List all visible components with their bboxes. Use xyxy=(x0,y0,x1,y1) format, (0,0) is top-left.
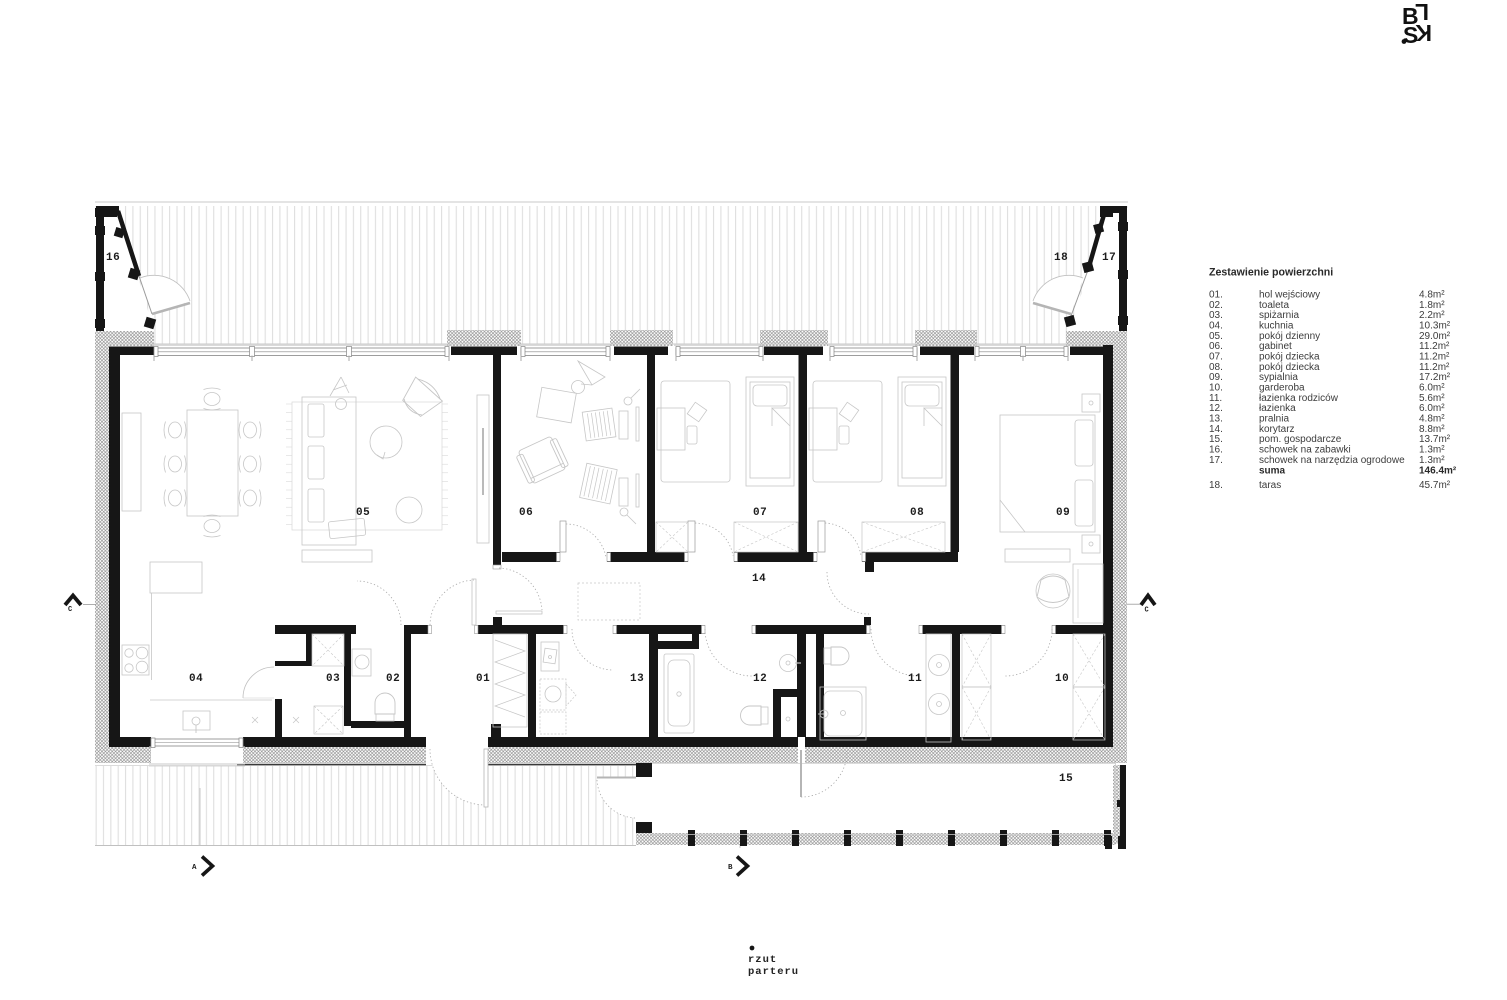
svg-text:45.7m²: 45.7m² xyxy=(1419,480,1451,491)
svg-text:parteru: parteru xyxy=(748,966,799,978)
svg-text:K: K xyxy=(1415,20,1432,46)
svg-text:suma: suma xyxy=(1259,466,1286,477)
svg-text:17.: 17. xyxy=(1209,455,1223,466)
svg-text:1.3m²: 1.3m² xyxy=(1419,444,1445,455)
svg-text:15: 15 xyxy=(1059,773,1073,785)
svg-text:A: A xyxy=(192,864,197,872)
svg-text:17: 17 xyxy=(1102,252,1116,264)
svg-text:10: 10 xyxy=(1055,673,1069,685)
svg-text:Zestawienie powierzchni: Zestawienie powierzchni xyxy=(1209,267,1333,279)
svg-text:C: C xyxy=(68,606,72,614)
svg-text:schowek na zabawki: schowek na zabawki xyxy=(1259,444,1351,455)
svg-text:02: 02 xyxy=(386,673,400,685)
svg-text:6.0m²: 6.0m² xyxy=(1419,403,1445,414)
svg-text:taras: taras xyxy=(1259,480,1281,491)
svg-text:11.2m²: 11.2m² xyxy=(1419,341,1450,352)
svg-text:02.: 02. xyxy=(1209,300,1223,311)
svg-text:16: 16 xyxy=(106,252,120,264)
svg-text:09: 09 xyxy=(1056,507,1070,519)
svg-text:08: 08 xyxy=(910,507,924,519)
svg-text:łazienka: łazienka xyxy=(1259,403,1296,414)
svg-text:16.: 16. xyxy=(1209,444,1223,455)
svg-text:09.: 09. xyxy=(1209,372,1223,383)
svg-text:11: 11 xyxy=(908,673,922,685)
svg-text:146.4m²: 146.4m² xyxy=(1419,466,1457,477)
svg-text:C: C xyxy=(1145,607,1149,615)
svg-text:B: B xyxy=(728,864,733,872)
svg-text:06: 06 xyxy=(519,507,533,519)
svg-text:rzut: rzut xyxy=(748,954,777,966)
svg-text:1.3m²: 1.3m² xyxy=(1419,455,1445,466)
svg-text:01: 01 xyxy=(476,673,490,685)
svg-text:18.: 18. xyxy=(1209,480,1223,491)
svg-text:18: 18 xyxy=(1054,252,1068,264)
svg-text:toaleta: toaleta xyxy=(1259,300,1289,311)
svg-text:schowek na narzędzia ogrodowe: schowek na narzędzia ogrodowe xyxy=(1259,455,1405,466)
svg-text:17.2m²: 17.2m² xyxy=(1419,372,1451,383)
svg-text:03: 03 xyxy=(326,673,340,685)
svg-text:04: 04 xyxy=(189,673,203,685)
svg-text:07: 07 xyxy=(753,507,767,519)
svg-text:sypialnia: sypialnia xyxy=(1259,372,1298,383)
svg-text:1.8m²: 1.8m² xyxy=(1419,300,1445,311)
svg-text:12: 12 xyxy=(753,673,767,685)
svg-text:13: 13 xyxy=(630,673,644,685)
svg-text:12.: 12. xyxy=(1209,403,1223,414)
svg-text:05: 05 xyxy=(356,507,370,519)
svg-text:06.: 06. xyxy=(1209,341,1223,352)
svg-text:gabinet: gabinet xyxy=(1259,341,1292,352)
svg-text:14: 14 xyxy=(752,573,766,585)
